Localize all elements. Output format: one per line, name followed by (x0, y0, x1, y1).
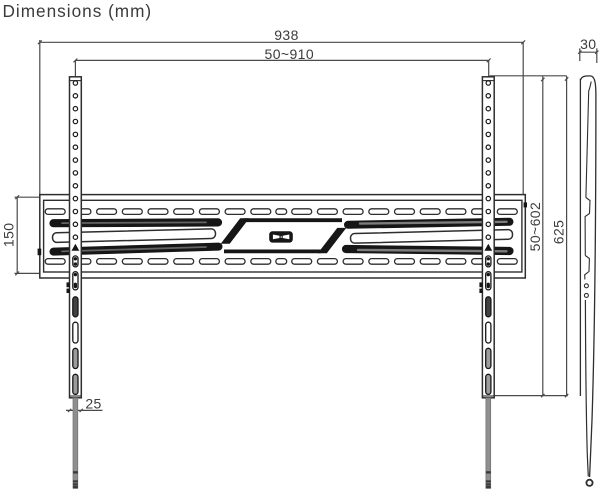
svg-text:50~602: 50~602 (527, 202, 543, 252)
svg-text:50~910: 50~910 (265, 46, 315, 62)
svg-text:Dimensions (mm): Dimensions (mm) (3, 1, 153, 21)
svg-text:625: 625 (550, 220, 566, 245)
svg-text:25: 25 (85, 396, 101, 412)
svg-text:938: 938 (274, 27, 299, 43)
svg-text:30: 30 (580, 36, 596, 52)
svg-text:150: 150 (0, 223, 16, 248)
